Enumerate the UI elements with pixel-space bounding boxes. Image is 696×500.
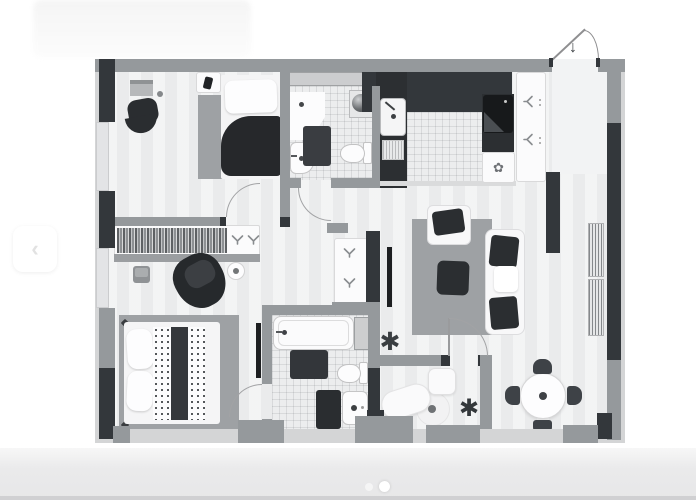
- hook-dot: [539, 137, 541, 139]
- tv-living: [387, 247, 392, 307]
- hook-dot: [539, 99, 541, 101]
- kitchen-grate: [382, 140, 404, 160]
- wall-pilaster: [113, 426, 130, 443]
- hanger-icon: [231, 234, 244, 245]
- study-desk: [428, 368, 456, 395]
- toilet-top-bowl: [340, 144, 365, 163]
- living-armchair-cushion: [431, 208, 465, 236]
- toilet-bottom-bowl: [337, 364, 361, 383]
- carousel-dot-inactive[interactable]: [365, 483, 373, 491]
- hanger-icon: [523, 95, 534, 108]
- wall-dark-segment: [607, 123, 621, 360]
- wall-dark-segment: [99, 59, 115, 122]
- single-bed-duvet: [221, 116, 281, 176]
- bathroom2-sink-tap: [361, 406, 364, 409]
- hanger-icon: [523, 133, 534, 146]
- dining-chair: [567, 386, 582, 405]
- hook-dot: [539, 104, 541, 106]
- door-post: [549, 58, 553, 67]
- entry-corridor-floor: [552, 62, 607, 174]
- study-dot: [428, 405, 436, 413]
- floorplan-image: ✿: [0, 0, 696, 500]
- plant-glyph: ✱: [380, 330, 401, 355]
- tv-wall-divider: [366, 231, 380, 305]
- wall-dark-segment: [99, 191, 115, 248]
- hanger-icon: [247, 234, 260, 245]
- hanger-icon: [343, 277, 356, 288]
- wall: [331, 178, 376, 188]
- plant-glyph: ✱: [459, 397, 479, 421]
- side-table-dot: [233, 268, 239, 274]
- radiator: [588, 223, 604, 277]
- wall-dark-segment: [597, 413, 612, 439]
- plant-icon: ✱: [377, 329, 403, 355]
- stove-knob: [504, 100, 507, 103]
- bathtub-inner: [278, 320, 349, 346]
- footer-band: [0, 448, 696, 500]
- outer-wall-top: [95, 59, 552, 72]
- entry-door-gap: [552, 59, 598, 73]
- wall-post: [220, 217, 226, 226]
- bath-mat: [316, 390, 341, 429]
- bathtub-tap: [276, 331, 282, 333]
- wall-dark-segment: [546, 172, 560, 253]
- wall: [112, 217, 226, 226]
- sofa-pillow-mid: [494, 266, 518, 292]
- waste-bin: [157, 91, 163, 97]
- stool-top: [135, 268, 148, 277]
- tv-bedroom: [256, 323, 261, 378]
- corner-sink-drain: [299, 102, 304, 107]
- gear-icon: ✿: [493, 161, 504, 174]
- wall-pilaster: [238, 420, 284, 443]
- wall: [380, 355, 448, 366]
- bath-mat: [290, 350, 328, 379]
- wall-pilaster: [426, 425, 480, 443]
- hanger-icon: [343, 247, 356, 258]
- wall: [372, 86, 380, 188]
- wall-pilaster: [563, 425, 598, 443]
- plant-icon: ✱: [456, 396, 482, 422]
- desk: [130, 80, 153, 96]
- hook-dot: [539, 142, 541, 144]
- coffee-table: [436, 260, 469, 295]
- entry-wardrobe: [516, 72, 546, 182]
- wall-pilaster: [355, 416, 413, 443]
- wall: [262, 305, 272, 384]
- single-bed-pillow: [224, 79, 277, 114]
- page: ✿: [0, 0, 696, 500]
- entry-arrow-icon: ↓: [563, 38, 583, 58]
- wall-segment: [607, 59, 621, 123]
- carousel-prev-button[interactable]: ‹: [13, 226, 57, 272]
- radiator: [588, 279, 604, 336]
- footer-bottom-line: [0, 496, 696, 500]
- wall: [285, 178, 301, 188]
- cabinet-gear: ✿: [482, 152, 515, 183]
- window: [96, 248, 109, 308]
- bathroom2-sink-drain: [351, 405, 357, 411]
- bathtub-drain: [282, 330, 287, 335]
- wall-post: [441, 355, 450, 366]
- sofa-cushion-bottom: [489, 296, 520, 330]
- entry-door-arc: [584, 30, 599, 60]
- entry-arrow-glyph: ↓: [569, 40, 577, 56]
- bath-mat-top: [303, 126, 331, 166]
- shelf-inset: [286, 72, 372, 86]
- wall: [262, 305, 380, 315]
- double-bed-pillow: [126, 370, 154, 411]
- dining-chair: [505, 386, 520, 405]
- sofa-cushion-top: [488, 235, 519, 269]
- double-bed-runner: [171, 327, 188, 420]
- wall-segment: [99, 308, 115, 368]
- double-bed-pillow: [126, 328, 155, 370]
- kitchen-sink-drain: [391, 114, 396, 119]
- hanging-clothes: [117, 228, 227, 253]
- window: [96, 122, 109, 191]
- dining-chair: [533, 359, 552, 374]
- stove-highlight: [484, 112, 504, 132]
- chevron-left-icon: ‹: [31, 238, 38, 260]
- wall: [280, 61, 290, 227]
- dining-table-center: [539, 392, 547, 400]
- wall-stub: [327, 223, 348, 233]
- carousel-dot-active[interactable]: [379, 481, 390, 492]
- bidet-tap: [291, 155, 297, 157]
- door-post: [596, 58, 600, 67]
- wall-post: [280, 217, 290, 227]
